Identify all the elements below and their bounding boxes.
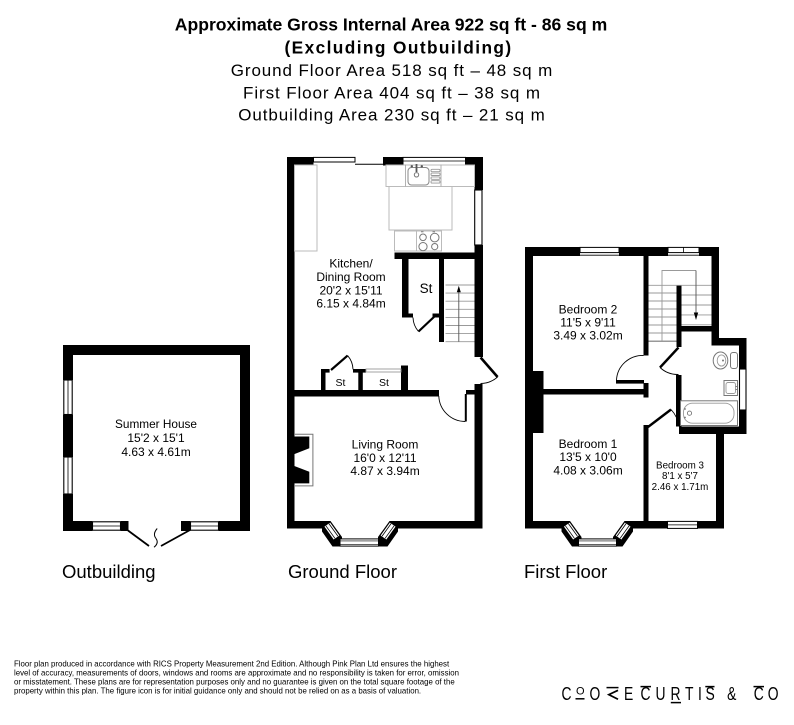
- svg-text:20'2 x 15'11: 20'2 x 15'11: [319, 283, 382, 297]
- svg-text:Bedroom 3: Bedroom 3: [656, 460, 704, 471]
- svg-text:O: O: [768, 684, 779, 704]
- svg-text:level of accuracy, measurement: level of accuracy, measurements of doors…: [14, 669, 459, 678]
- svg-text:Bedroom 2: Bedroom 2: [559, 302, 618, 316]
- svg-text:or misstatement. These plans a: or misstatement. These plans are for rep…: [14, 678, 455, 687]
- svg-text:(Excluding Outbuilding): (Excluding Outbuilding): [284, 38, 512, 58]
- svg-text:8'1 x 5'7: 8'1 x 5'7: [662, 471, 698, 482]
- svg-text:Outbuilding Area 230 sq ft – 2: Outbuilding Area 230 sq ft – 21 sq m: [238, 106, 545, 125]
- svg-text:I: I: [698, 684, 702, 704]
- svg-text:Kitchen/: Kitchen/: [329, 257, 373, 271]
- svg-text:4.87 x 3.94m: 4.87 x 3.94m: [350, 464, 419, 478]
- svg-text:U: U: [656, 684, 666, 704]
- svg-text:O: O: [590, 684, 601, 704]
- svg-text:First Floor Area 404 sq ft – 3: First Floor Area 404 sq ft – 38 sq m: [243, 83, 541, 102]
- svg-text:Floor plan produced in accorda: Floor plan produced in accordance with R…: [14, 660, 450, 669]
- svg-text:St: St: [420, 281, 433, 296]
- svg-text:2.46 x 1.71m: 2.46 x 1.71m: [652, 482, 709, 493]
- svg-text:Outbuilding: Outbuilding: [62, 561, 156, 582]
- svg-text:&: &: [727, 684, 736, 704]
- svg-text:16'0 x 12'11: 16'0 x 12'11: [353, 451, 416, 465]
- svg-text:Dining Room: Dining Room: [316, 270, 385, 284]
- svg-text:3.49 x 3.02m: 3.49 x 3.02m: [553, 329, 622, 343]
- svg-text:T: T: [685, 684, 693, 704]
- svg-text:13'5 x 10'0: 13'5 x 10'0: [559, 450, 617, 464]
- svg-text:St: St: [379, 377, 389, 389]
- svg-text:St: St: [336, 377, 346, 389]
- svg-text:R: R: [671, 684, 681, 704]
- svg-text:Summer House: Summer House: [115, 417, 197, 431]
- svg-text:Approximate Gross Internal Are: Approximate Gross Internal Area 922 sq f…: [175, 15, 608, 35]
- svg-text:property within this plan. The: property within this plan. The figure ic…: [14, 687, 421, 696]
- svg-text:11'5 x 9'11: 11'5 x 9'11: [560, 315, 616, 329]
- svg-text:Living Room: Living Room: [352, 438, 419, 452]
- svg-text:Ground Floor: Ground Floor: [288, 561, 397, 582]
- svg-text:4.63 x 4.61m: 4.63 x 4.61m: [121, 445, 190, 459]
- svg-text:Ground Floor Area 518 sq ft –: Ground Floor Area 518 sq ft – 48 sq m: [231, 61, 553, 80]
- svg-text:O: O: [576, 686, 585, 698]
- svg-text:15'2 x 15'1: 15'2 x 15'1: [127, 431, 185, 445]
- svg-text:4.08 x 3.06m: 4.08 x 3.06m: [553, 463, 622, 477]
- svg-text:First Floor: First Floor: [524, 561, 607, 582]
- svg-text:Bedroom 1: Bedroom 1: [559, 437, 618, 451]
- svg-text:E: E: [624, 684, 633, 704]
- svg-text:C: C: [562, 684, 572, 704]
- svg-text:6.15 x 4.84m: 6.15 x 4.84m: [316, 297, 385, 311]
